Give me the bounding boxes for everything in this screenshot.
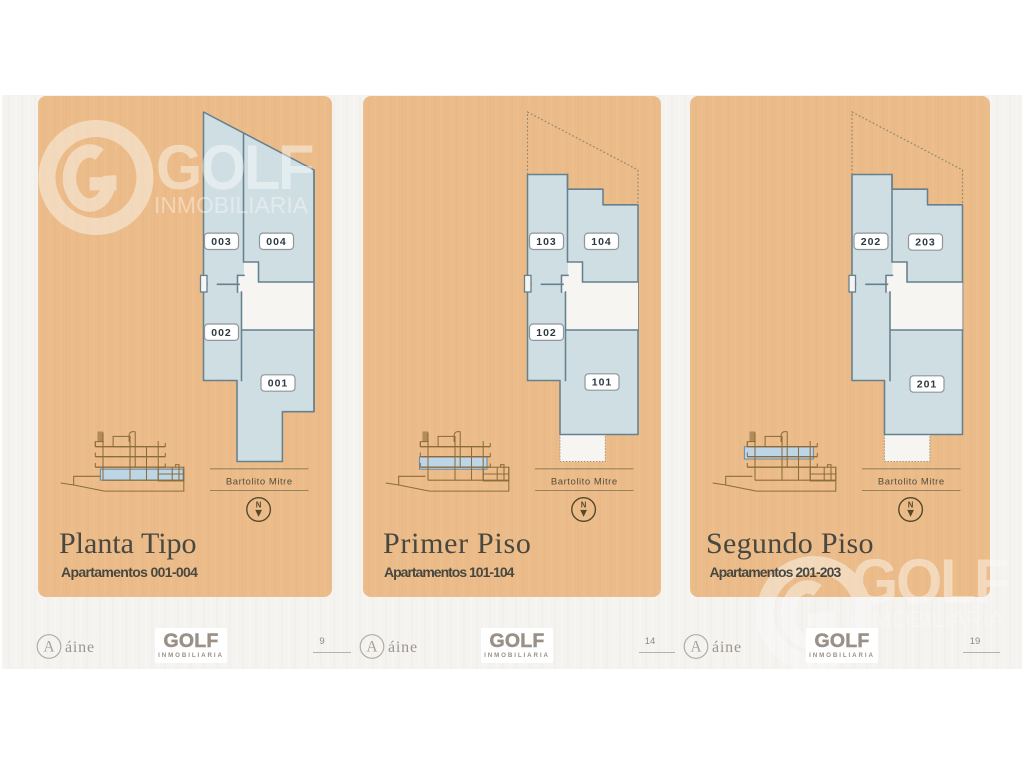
svg-text:Bartolito Mitre: Bartolito Mitre [551,476,618,487]
svg-text:N: N [256,501,262,510]
svg-text:A: A [366,639,378,656]
svg-text:202: 202 [861,236,882,248]
svg-text:Bartolito Mitre: Bartolito Mitre [878,476,945,487]
svg-text:103: 103 [536,236,557,248]
svg-text:áine: áine [388,639,418,656]
svg-text:002: 002 [211,327,232,339]
svg-text:001: 001 [268,378,289,390]
svg-text:101: 101 [592,377,613,389]
svg-text:áine: áine [712,639,742,656]
svg-text:N: N [581,501,587,510]
svg-text:102: 102 [536,327,557,339]
svg-text:áine: áine [65,639,95,656]
svg-text:N: N [908,501,914,510]
svg-text:203: 203 [915,237,936,249]
svg-text:104: 104 [591,236,612,248]
svg-text:004: 004 [266,236,287,248]
svg-text:Bartolito Mitre: Bartolito Mitre [226,476,293,487]
svg-text:A: A [690,639,702,656]
svg-text:201: 201 [917,379,938,391]
svg-text:003: 003 [211,236,232,248]
svg-text:A: A [43,639,55,656]
